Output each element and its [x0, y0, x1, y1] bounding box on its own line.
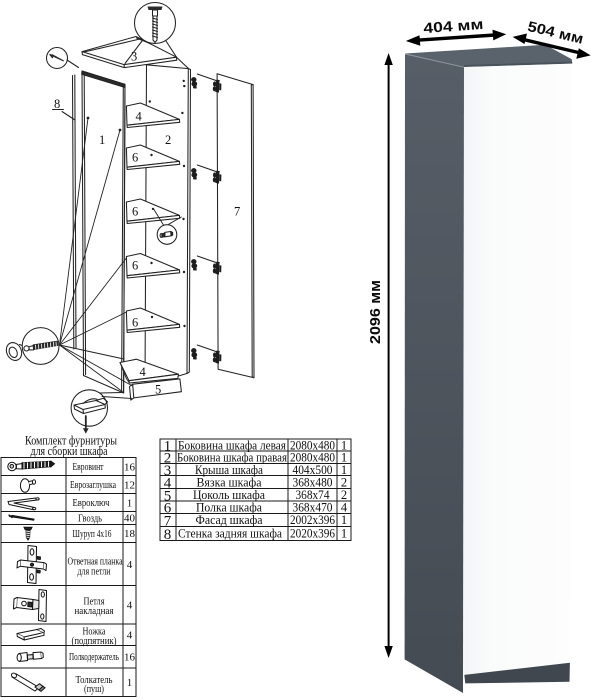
svg-text:1: 1 [127, 677, 133, 689]
svg-text:18: 18 [124, 528, 136, 540]
svg-text:1: 1 [99, 133, 105, 147]
svg-text:накладная: накладная [75, 606, 114, 617]
svg-text:3: 3 [131, 50, 137, 64]
svg-text:2: 2 [165, 133, 171, 147]
svg-text:(пуш): (пуш) [84, 684, 104, 695]
svg-text:2002х396: 2002х396 [290, 513, 335, 527]
svg-text:6: 6 [132, 259, 138, 273]
svg-text:Полкодержатель: Полкодержатель [69, 652, 119, 663]
svg-text:4: 4 [127, 600, 133, 612]
svg-text:16: 16 [124, 652, 136, 664]
svg-text:5: 5 [155, 383, 161, 397]
svg-text:1: 1 [341, 527, 347, 541]
svg-text:16: 16 [124, 462, 136, 474]
svg-text:404 мм: 404 мм [423, 17, 484, 37]
svg-text:4: 4 [140, 365, 147, 379]
svg-text:2020х396: 2020х396 [290, 527, 335, 541]
svg-text:Еврозаглушка: Еврозаглушка [70, 480, 116, 491]
svg-text:4: 4 [127, 630, 133, 642]
svg-text:для петли: для петли [78, 567, 112, 578]
svg-text:6: 6 [132, 316, 138, 330]
svg-text:Фасад шкафа: Фасад шкафа [196, 513, 263, 527]
svg-text:Евроключ: Евроключ [73, 498, 110, 509]
svg-text:Стенка задняя шкафа: Стенка задняя шкафа [178, 527, 282, 541]
svg-text:Шуруп 4х16: Шуруп 4х16 [73, 529, 112, 540]
svg-text:12: 12 [124, 480, 135, 492]
svg-text:6: 6 [132, 205, 138, 219]
svg-text:(подпятник): (подпятник) [72, 636, 117, 647]
svg-text:Гвоздь: Гвоздь [78, 514, 102, 525]
svg-text:4: 4 [127, 559, 133, 571]
svg-text:4: 4 [136, 110, 143, 124]
svg-text:7: 7 [234, 205, 240, 219]
svg-text:6: 6 [132, 151, 138, 165]
svg-text:1: 1 [341, 513, 347, 527]
svg-text:1: 1 [127, 498, 133, 510]
svg-text:2096 мм: 2096 мм [367, 280, 384, 344]
svg-text:для сборки шкафа: для сборки шкафа [31, 444, 108, 458]
svg-text:40: 40 [124, 513, 136, 525]
svg-text:8: 8 [54, 97, 60, 111]
svg-text:8: 8 [164, 527, 172, 543]
svg-text:Евровинт: Евровинт [73, 462, 104, 473]
